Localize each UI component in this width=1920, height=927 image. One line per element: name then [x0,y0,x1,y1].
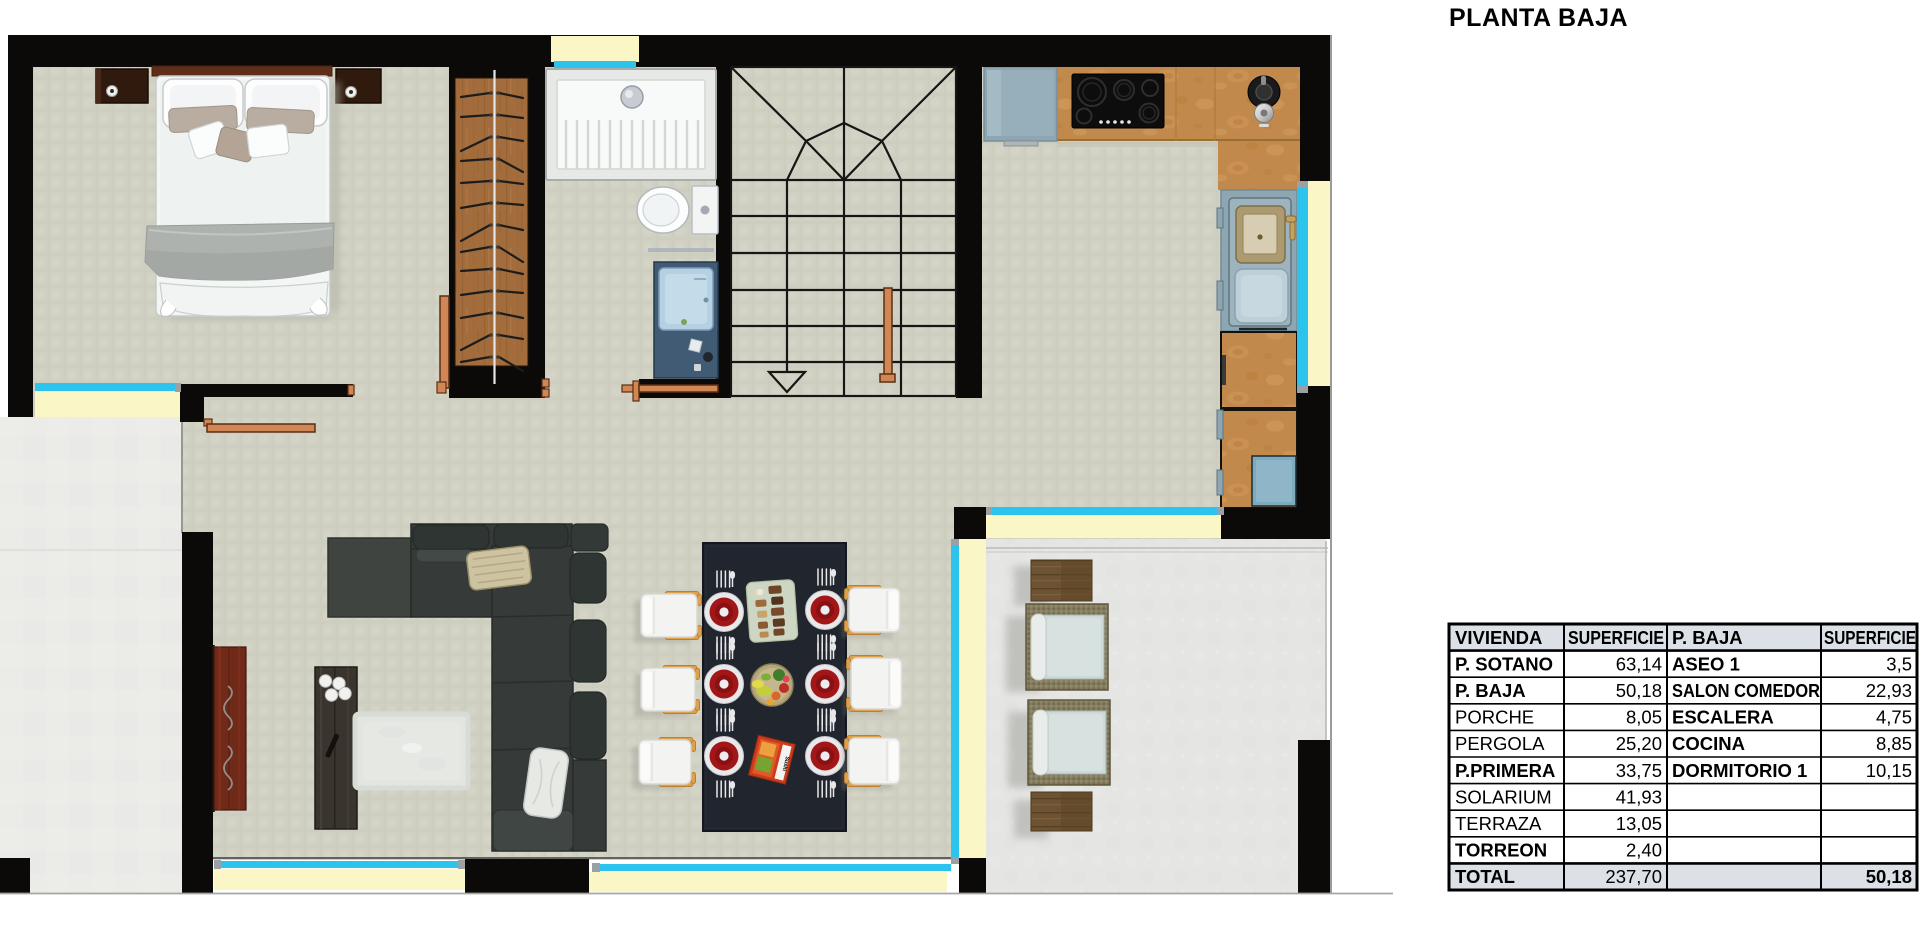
svg-text:P. BAJA: P. BAJA [1455,680,1526,701]
svg-text:P.PRIMERA: P.PRIMERA [1455,760,1555,781]
svg-text:33,75: 33,75 [1616,760,1662,781]
svg-text:10,15: 10,15 [1866,760,1912,781]
svg-text:41,93: 41,93 [1616,786,1662,807]
svg-text:50,18: 50,18 [1866,866,1912,887]
svg-text:2,40: 2,40 [1626,840,1662,861]
svg-text:8,85: 8,85 [1876,733,1912,754]
svg-text:SUPERFICIE: SUPERFICIE [1824,627,1916,648]
svg-text:PLANTA BAJA: PLANTA BAJA [1449,4,1628,32]
svg-text:22,93: 22,93 [1866,680,1912,701]
svg-text:SALON COMEDOR: SALON COMEDOR [1672,680,1820,701]
svg-text:237,70: 237,70 [1605,866,1662,887]
svg-text:P. SOTANO: P. SOTANO [1455,653,1553,674]
svg-text:COCINA: COCINA [1672,733,1745,754]
svg-text:4,75: 4,75 [1876,707,1912,728]
svg-text:SUPERFICIE: SUPERFICIE [1568,627,1664,648]
svg-text:VIVIENDA: VIVIENDA [1455,627,1542,648]
svg-text:ESCALERA: ESCALERA [1672,707,1774,728]
svg-text:8,05: 8,05 [1626,707,1662,728]
svg-text:PERGOLA: PERGOLA [1455,733,1545,754]
svg-text:25,20: 25,20 [1616,733,1662,754]
svg-text:DORMITORIO 1: DORMITORIO 1 [1672,760,1807,781]
svg-text:SOLARIUM: SOLARIUM [1455,786,1552,807]
svg-text:63,14: 63,14 [1616,653,1662,674]
svg-text:TOTAL: TOTAL [1455,866,1515,887]
svg-text:P. BAJA: P. BAJA [1672,627,1743,648]
svg-text:3,5: 3,5 [1886,653,1912,674]
svg-text:50,18: 50,18 [1616,680,1662,701]
svg-text:PORCHE: PORCHE [1455,707,1534,728]
svg-text:ASEO 1: ASEO 1 [1672,653,1740,674]
svg-text:TERRAZA: TERRAZA [1455,813,1542,834]
svg-text:TORREON: TORREON [1455,840,1547,861]
svg-text:13,05: 13,05 [1616,813,1662,834]
